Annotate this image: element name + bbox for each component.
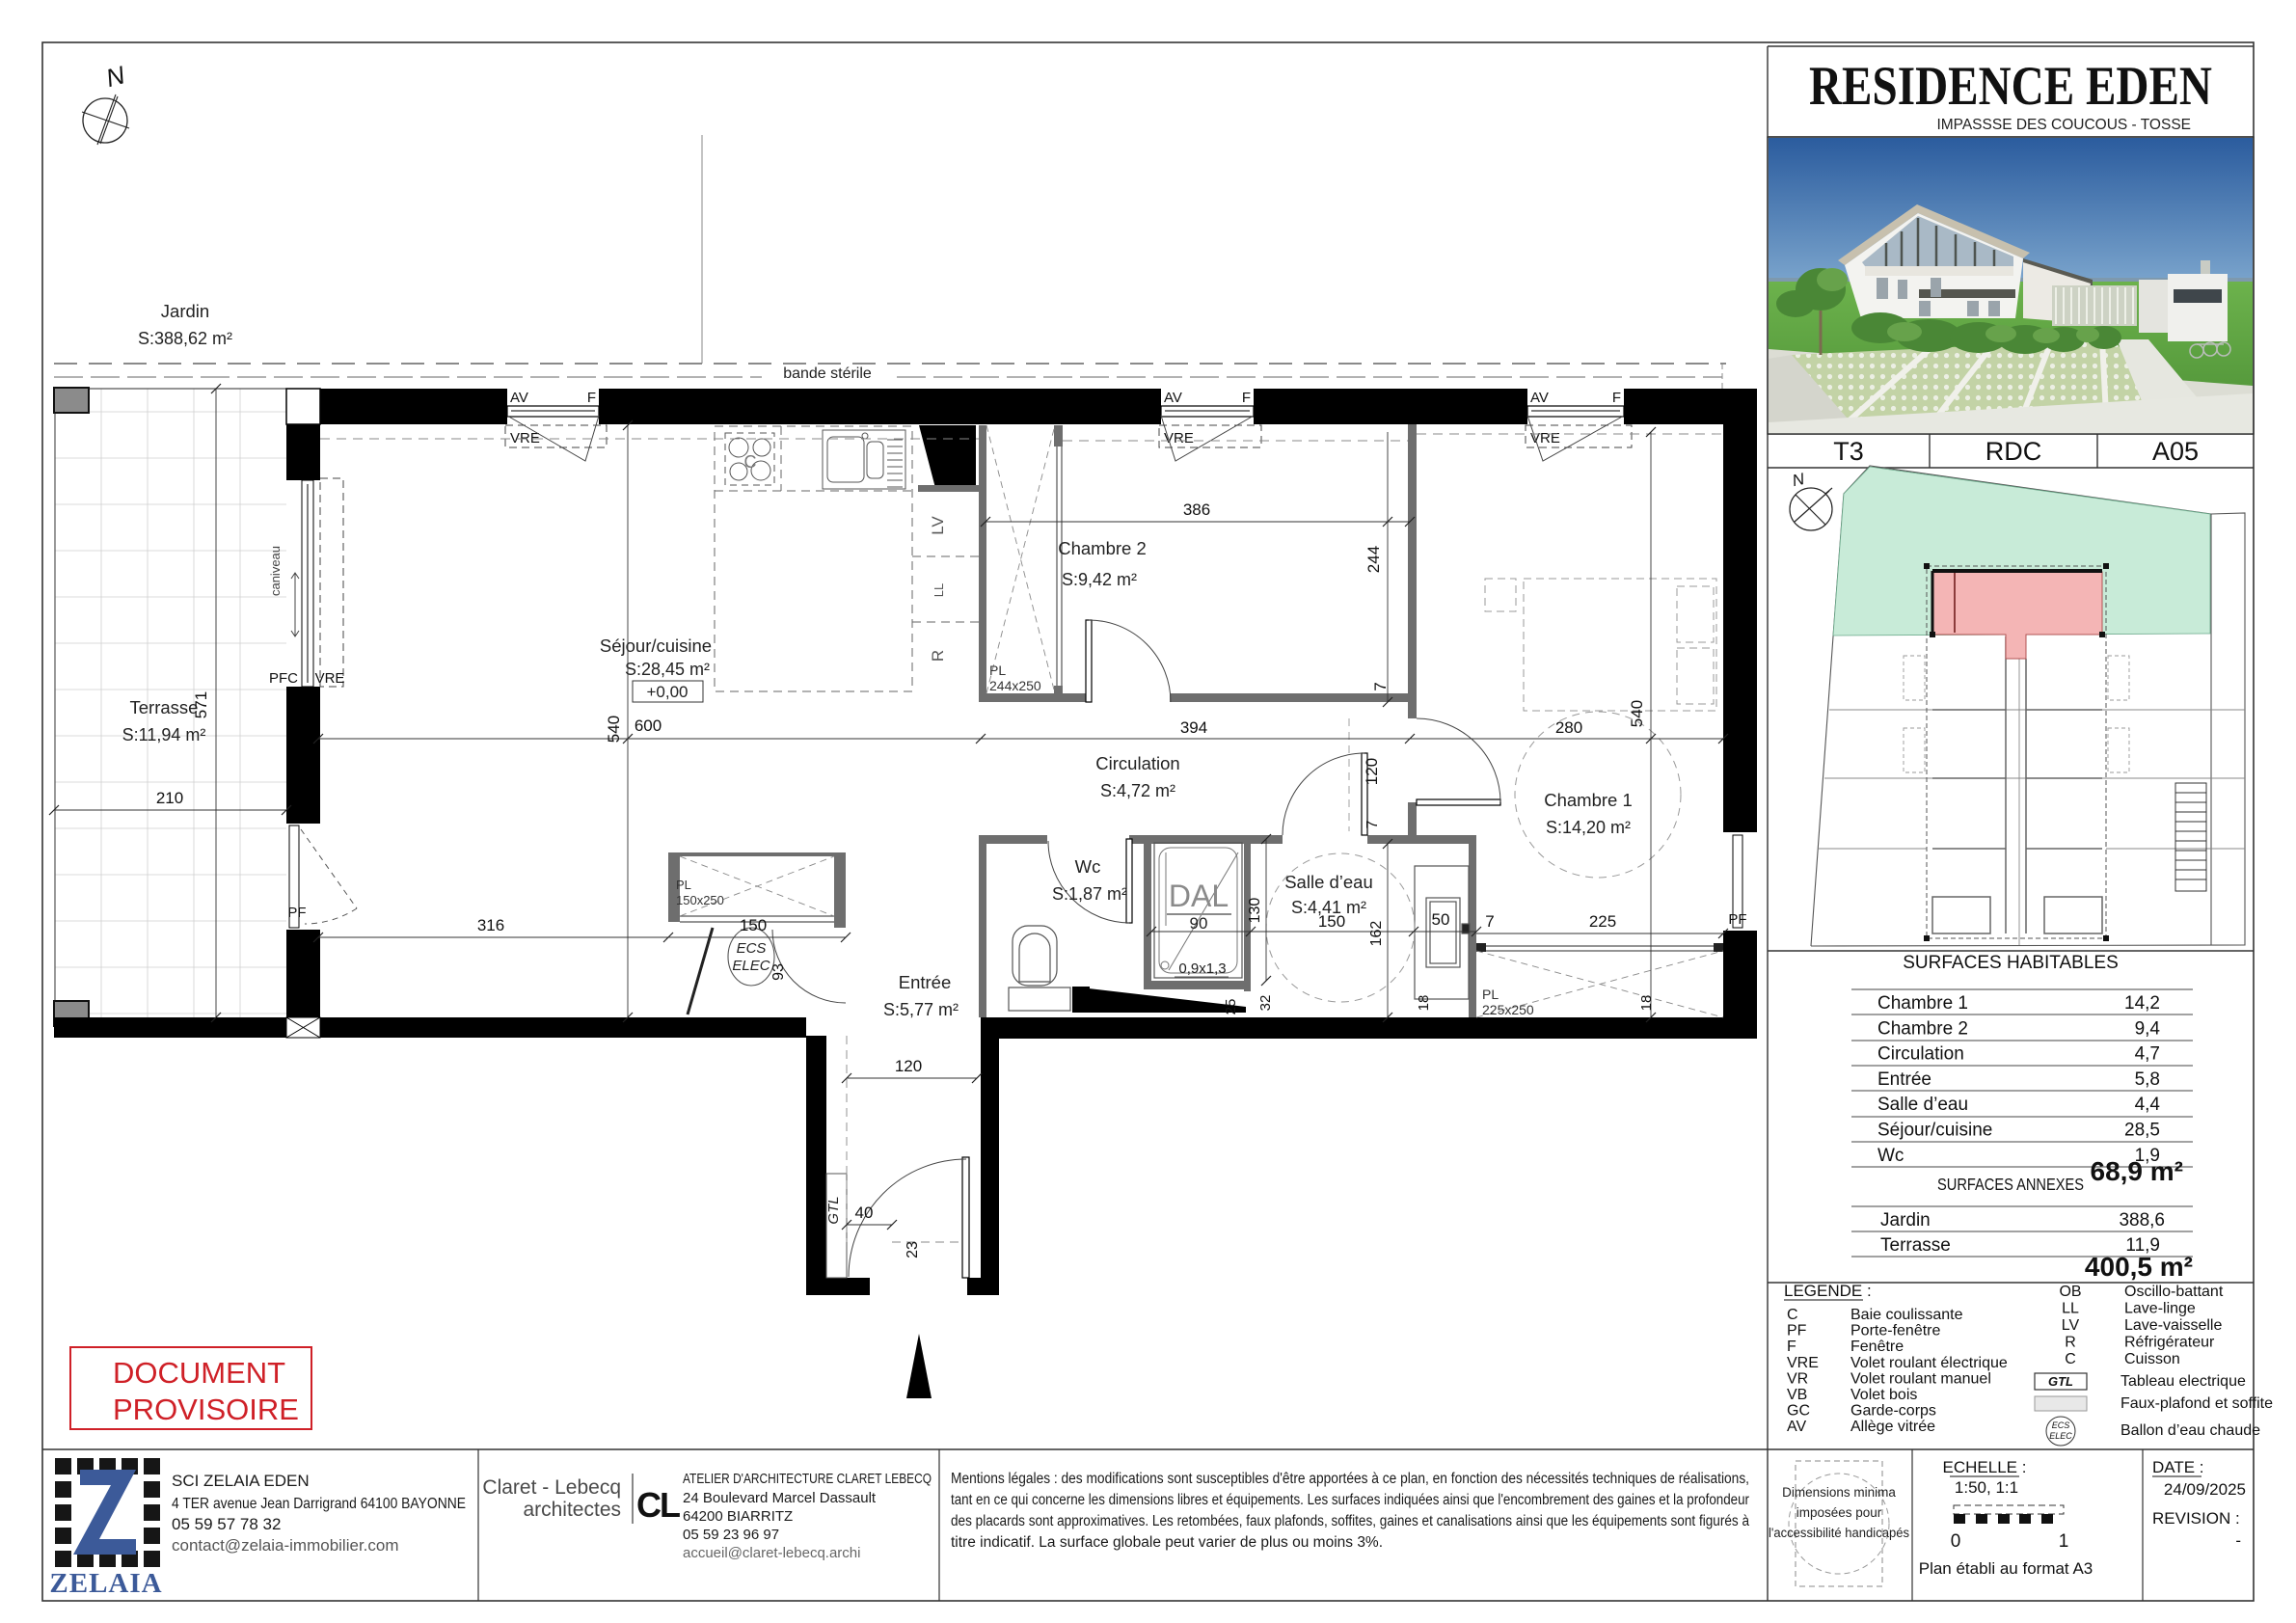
- svg-text:PF: PF: [1728, 911, 1746, 928]
- svg-text:SURFACES HABITABLES: SURFACES HABITABLES: [1903, 953, 2119, 973]
- svg-text:1: 1: [2059, 1531, 2069, 1552]
- svg-text:386: 386: [1183, 500, 1210, 519]
- svg-text:F: F: [1787, 1339, 1796, 1355]
- svg-text:225: 225: [1589, 912, 1616, 931]
- svg-text:7: 7: [1485, 912, 1494, 931]
- svg-text:Séjour/cuisine: Séjour/cuisine: [600, 636, 712, 656]
- svg-text:ECHELLE :: ECHELLE :: [1943, 1458, 2027, 1476]
- svg-text:120: 120: [895, 1057, 922, 1075]
- svg-text:LV: LV: [929, 516, 947, 535]
- svg-text:Wc: Wc: [1877, 1146, 1904, 1166]
- svg-text:Jardin: Jardin: [1880, 1210, 1931, 1231]
- svg-text:Séjour/cuisine: Séjour/cuisine: [1877, 1121, 1992, 1141]
- svg-text:PFC: PFC: [269, 670, 298, 687]
- svg-text:VR: VR: [1787, 1370, 1808, 1387]
- svg-text:244: 244: [1364, 546, 1383, 573]
- svg-text:l'accessibilité handicapés: l'accessibilité handicapés: [1769, 1526, 1909, 1540]
- svg-text:S:388,62 m²: S:388,62 m²: [138, 329, 232, 348]
- svg-text:Plan établi au format A3: Plan établi au format A3: [1919, 1559, 2093, 1578]
- svg-text:Salle d’eau: Salle d’eau: [1877, 1095, 1968, 1115]
- svg-text:ECS: ECS: [2052, 1420, 2070, 1430]
- svg-text:Baie coulissante: Baie coulissante: [1850, 1307, 1963, 1323]
- svg-text:40: 40: [855, 1204, 874, 1222]
- svg-text:PF: PF: [1787, 1323, 1807, 1339]
- svg-text:PL: PL: [676, 878, 691, 892]
- svg-text:Chambre 2: Chambre 2: [1058, 538, 1147, 558]
- svg-text:T3: T3: [1833, 437, 1864, 466]
- svg-text:contact@zelaia-immobilier.com: contact@zelaia-immobilier.com: [172, 1536, 399, 1555]
- svg-text:imposées pour: imposées pour: [1796, 1505, 1882, 1520]
- svg-text:Circulation: Circulation: [1095, 753, 1179, 773]
- svg-text:S:1,87 m²: S:1,87 m²: [1052, 884, 1127, 904]
- svg-text:PL: PL: [989, 663, 1006, 678]
- svg-text:C: C: [744, 452, 757, 472]
- svg-text:+0,00: +0,00: [646, 683, 688, 701]
- svg-text:400,5 m²: 400,5 m²: [2085, 1252, 2193, 1282]
- svg-text:C: C: [2065, 1351, 2076, 1367]
- svg-text:571: 571: [192, 691, 210, 718]
- svg-text:Salle d’eau: Salle d’eau: [1284, 872, 1373, 892]
- svg-text:130: 130: [1247, 898, 1263, 924]
- svg-text:120: 120: [1363, 758, 1381, 785]
- svg-text:GTL: GTL: [2048, 1374, 2073, 1389]
- svg-text:Jardin: Jardin: [161, 301, 209, 321]
- svg-text:C: C: [1787, 1307, 1798, 1323]
- svg-text:Entrée: Entrée: [899, 972, 952, 992]
- svg-text:GC: GC: [1787, 1403, 1810, 1420]
- svg-text:Claret - Lebecq: Claret - Lebecq: [482, 1476, 621, 1499]
- svg-text:4,7: 4,7: [2135, 1044, 2160, 1065]
- svg-text:AV: AV: [510, 390, 528, 406]
- svg-text:50: 50: [1432, 910, 1450, 929]
- svg-text:Volet roulant manuel: Volet roulant manuel: [1850, 1370, 1991, 1387]
- svg-text:4,4: 4,4: [2135, 1095, 2161, 1115]
- svg-text:S:9,42 m²: S:9,42 m²: [1062, 570, 1137, 589]
- svg-text:F: F: [587, 390, 596, 406]
- svg-text:388,6: 388,6: [2119, 1210, 2165, 1231]
- svg-text:Volet roulant électrique: Volet roulant électrique: [1850, 1355, 2008, 1371]
- svg-text:7: 7: [1364, 820, 1381, 828]
- svg-text:LL: LL: [2062, 1301, 2079, 1317]
- svg-text:ELEC: ELEC: [2049, 1431, 2072, 1441]
- svg-text:Ballon d’eau chaude: Ballon d’eau chaude: [2120, 1422, 2260, 1439]
- svg-text:Fenêtre: Fenêtre: [1850, 1339, 1904, 1355]
- svg-text:Dimensions minima: Dimensions minima: [1782, 1485, 1896, 1500]
- svg-text:R: R: [929, 650, 947, 662]
- svg-text:DAL: DAL: [1169, 879, 1229, 913]
- svg-text:F: F: [1612, 390, 1621, 406]
- svg-text:Lave-linge: Lave-linge: [2124, 1301, 2196, 1317]
- svg-text:accueil@claret-lebecq.archi: accueil@claret-lebecq.archi: [683, 1545, 860, 1561]
- svg-text:Mentions légales : des modific: Mentions légales : des modifications son…: [951, 1471, 1749, 1487]
- svg-text:64200 BIARRITZ: 64200 BIARRITZ: [683, 1508, 793, 1525]
- svg-text:7: 7: [1371, 682, 1390, 690]
- svg-text:Cuisson: Cuisson: [2124, 1351, 2180, 1367]
- svg-text:des placards sont approximativ: des placards sont approximatives. Les re…: [951, 1513, 1749, 1529]
- svg-text:93: 93: [770, 963, 787, 981]
- svg-text:bande stérile: bande stérile: [783, 365, 872, 382]
- svg-text:28,5: 28,5: [2124, 1121, 2160, 1141]
- svg-text:Garde-corps: Garde-corps: [1850, 1403, 1936, 1420]
- svg-text:68,9 m²: 68,9 m²: [2091, 1156, 2184, 1186]
- svg-text:VRE: VRE: [315, 670, 345, 687]
- svg-text:tant en ce qui concerne les di: tant en ce qui concerne les dimensions l…: [951, 1492, 1749, 1508]
- svg-text:225x250: 225x250: [1482, 1002, 1534, 1017]
- svg-text:05 59 57 78 32: 05 59 57 78 32: [172, 1515, 281, 1533]
- svg-text:RESIDENCE EDEN: RESIDENCE EDEN: [1809, 56, 2212, 117]
- svg-text:S:4,72 m²: S:4,72 m²: [1100, 781, 1175, 800]
- svg-text:GTL: GTL: [825, 1196, 842, 1224]
- svg-text:90: 90: [1190, 914, 1208, 933]
- svg-text:Tableau electrique: Tableau electrique: [2120, 1373, 2246, 1390]
- svg-text:architectes: architectes: [523, 1499, 621, 1521]
- svg-text:Circulation: Circulation: [1877, 1044, 1964, 1065]
- svg-text:OB: OB: [2059, 1284, 2081, 1300]
- svg-text:23: 23: [905, 1241, 921, 1258]
- svg-text:AV: AV: [1164, 390, 1182, 406]
- svg-text:32: 32: [1257, 995, 1274, 1012]
- svg-text:150: 150: [1318, 912, 1345, 931]
- svg-text:Faux-plafond et soffite: Faux-plafond et soffite: [2120, 1395, 2273, 1412]
- svg-text:PL: PL: [1482, 987, 1499, 1002]
- svg-text:05 59 23 96 97: 05 59 23 96 97: [683, 1527, 779, 1543]
- svg-text:ELEC: ELEC: [732, 958, 770, 974]
- svg-text:5,8: 5,8: [2135, 1069, 2160, 1090]
- svg-text:AV: AV: [1530, 390, 1549, 406]
- svg-text:PF: PF: [287, 905, 306, 921]
- svg-text:1:50, 1:1: 1:50, 1:1: [1955, 1478, 2018, 1497]
- svg-text:210: 210: [156, 789, 183, 807]
- svg-text:-: -: [2235, 1531, 2241, 1550]
- svg-text:9,4: 9,4: [2135, 1018, 2161, 1039]
- svg-text:Volet bois: Volet bois: [1850, 1387, 1917, 1403]
- svg-text:DOCUMENT: DOCUMENT: [113, 1356, 285, 1390]
- svg-text:IMPASSSE DES COUCOUS - TOSSE: IMPASSSE DES COUCOUS - TOSSE: [1936, 117, 2191, 133]
- svg-text:DATE :: DATE :: [2152, 1458, 2204, 1476]
- svg-text:Porte-fenêtre: Porte-fenêtre: [1850, 1323, 1940, 1339]
- svg-text:REVISION :: REVISION :: [2152, 1509, 2240, 1528]
- svg-text:540: 540: [1628, 700, 1646, 727]
- svg-text:LV: LV: [2062, 1317, 2080, 1334]
- svg-text:Wc: Wc: [1075, 856, 1101, 877]
- svg-text:Terrasse: Terrasse: [1880, 1235, 1951, 1256]
- svg-text:ECS: ECS: [737, 940, 767, 957]
- svg-text:VRE: VRE: [1787, 1355, 1819, 1371]
- svg-text:S:14,20 m²: S:14,20 m²: [1546, 818, 1631, 837]
- svg-text:Terrasse: Terrasse: [130, 697, 199, 717]
- svg-text:600: 600: [635, 717, 662, 735]
- svg-text:316: 316: [477, 916, 504, 934]
- svg-text:4 TER avenue Jean Darrigrand 6: 4 TER avenue Jean Darrigrand 64100 BAYON…: [172, 1496, 466, 1512]
- svg-text:A05: A05: [2152, 437, 2199, 466]
- svg-text:Réfrigérateur: Réfrigérateur: [2124, 1335, 2215, 1351]
- svg-text:0,9x1,3: 0,9x1,3: [1178, 960, 1226, 977]
- svg-text:S:11,94 m²: S:11,94 m²: [122, 725, 206, 744]
- svg-text:S:28,45 m²: S:28,45 m²: [625, 660, 710, 679]
- svg-text:ATELIER D'ARCHITECTURE CLARET: ATELIER D'ARCHITECTURE CLARET LEBECQ: [683, 1471, 932, 1487]
- svg-text:caniveau: caniveau: [268, 546, 283, 596]
- svg-text:CL: CL: [636, 1485, 680, 1525]
- svg-text:Entrée: Entrée: [1877, 1069, 1931, 1090]
- svg-text:titre indicatif. La surface gl: titre indicatif. La surface globale peut…: [951, 1534, 1383, 1551]
- svg-text:25: 25: [1223, 999, 1239, 1015]
- svg-text:ZELAIA: ZELAIA: [49, 1568, 162, 1599]
- svg-text:SCI ZELAIA EDEN: SCI ZELAIA EDEN: [172, 1472, 310, 1490]
- svg-text:Allège vitrée: Allège vitrée: [1850, 1419, 1935, 1435]
- svg-text:18: 18: [1416, 995, 1432, 1012]
- svg-text:280: 280: [1555, 718, 1582, 737]
- svg-text:18: 18: [1638, 995, 1655, 1012]
- svg-text:VB: VB: [1787, 1387, 1807, 1403]
- svg-text:Chambre 1: Chambre 1: [1877, 993, 1968, 1014]
- svg-text:Chambre 1: Chambre 1: [1544, 790, 1633, 810]
- svg-text:S:5,77 m²: S:5,77 m²: [883, 1000, 959, 1019]
- svg-text:LL: LL: [932, 583, 946, 597]
- svg-text:AV: AV: [1787, 1419, 1806, 1435]
- svg-text:SURFACES ANNEXES: SURFACES ANNEXES: [1937, 1175, 2084, 1194]
- svg-text:24 Boulevard Marcel Dassault: 24 Boulevard Marcel Dassault: [683, 1490, 877, 1506]
- svg-text:244x250: 244x250: [989, 678, 1041, 693]
- svg-text:LEGENDE :: LEGENDE :: [1784, 1282, 1872, 1300]
- svg-text:24/09/2025: 24/09/2025: [2164, 1480, 2246, 1499]
- svg-text:Oscillo-battant: Oscillo-battant: [2124, 1284, 2224, 1300]
- svg-text:VRE: VRE: [510, 430, 540, 446]
- svg-text:150x250: 150x250: [676, 893, 724, 907]
- svg-text:150: 150: [740, 916, 767, 934]
- svg-text:0: 0: [1951, 1531, 1961, 1552]
- svg-text:Chambre 2: Chambre 2: [1877, 1018, 1968, 1039]
- svg-text:14,2: 14,2: [2124, 993, 2160, 1014]
- svg-text:540: 540: [605, 716, 623, 743]
- svg-text:F: F: [1242, 390, 1251, 406]
- svg-text:Lave-vaisselle: Lave-vaisselle: [2124, 1317, 2222, 1334]
- svg-text:PROVISOIRE: PROVISOIRE: [113, 1393, 299, 1426]
- svg-text:162: 162: [1368, 921, 1385, 947]
- svg-text:R: R: [2065, 1335, 2076, 1351]
- svg-text:394: 394: [1180, 718, 1207, 737]
- svg-text:RDC: RDC: [1985, 437, 2042, 466]
